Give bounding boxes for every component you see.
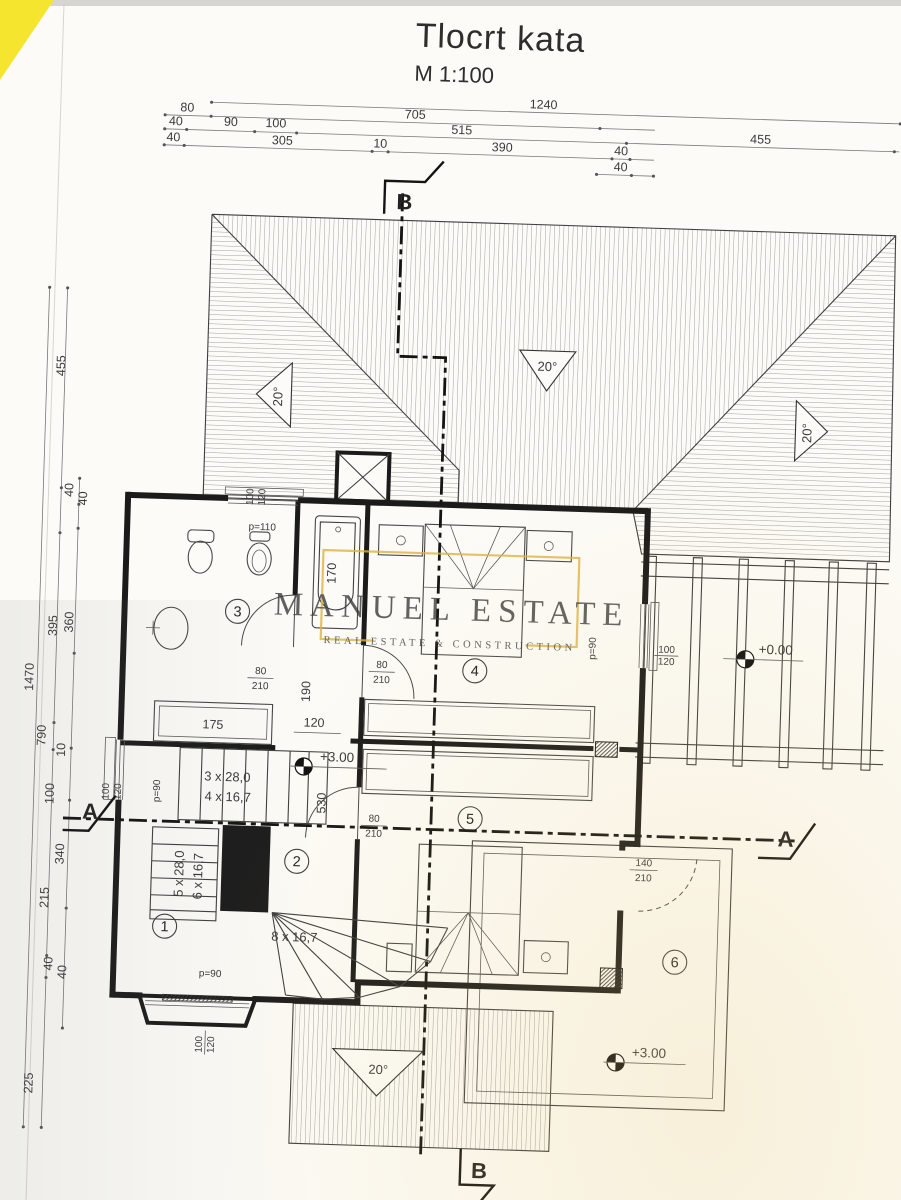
photo-shadow bbox=[0, 600, 901, 1200]
floor-plan-photo: Tlocrt kata M 1:100 1240 80 705 40 90 10… bbox=[0, 0, 901, 1200]
floor-plan-drawing: Tlocrt kata M 1:100 1240 80 705 40 90 10… bbox=[0, 0, 901, 1200]
